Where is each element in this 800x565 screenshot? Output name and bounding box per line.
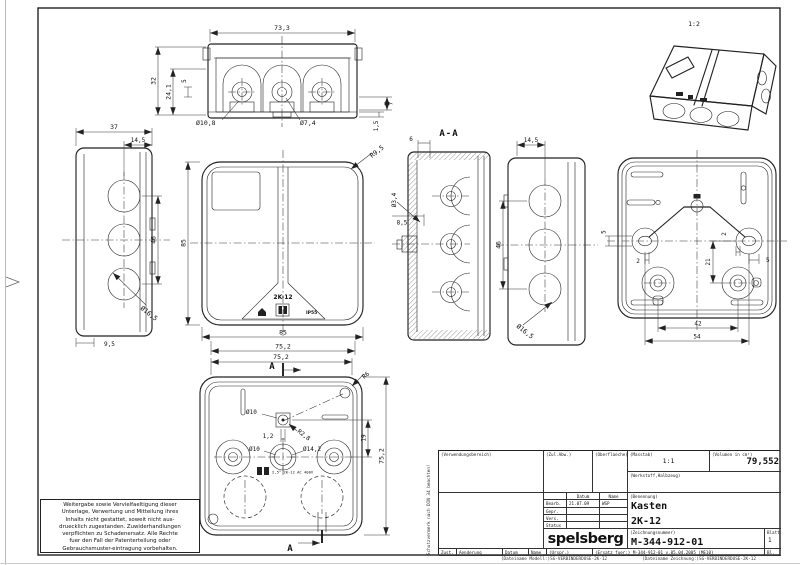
dim-bot-o1: 1,2 <box>263 433 274 440</box>
drawing-number: M-344-912-01 <box>631 537 703 548</box>
dim-left-h: 46 <box>150 236 158 244</box>
house-icon <box>258 308 266 316</box>
dim-bot-d1: Ø10 <box>246 409 257 416</box>
view-front: 2K-12 IP55 85 85 75,2 R9,5 <box>180 144 386 355</box>
dim-top-r2: 1,5 <box>373 120 380 131</box>
tb-sig-corner <box>544 493 567 500</box>
protection-note-vertical: Schutzvermerk nach DIN 34 beachten! <box>427 450 437 555</box>
svg-text:A: A <box>269 362 275 372</box>
dim-top-d1: Ø10,8 <box>196 119 216 127</box>
note-line: druecklich zugestanden. Zuwiderhandlunge… <box>41 524 199 531</box>
dim-back-o4: 5 <box>766 257 770 264</box>
dim-right-d: Ø16,5 <box>515 322 535 340</box>
note-line: Weitergabe sowie Vervielfaeltigung diese… <box>41 502 199 509</box>
file-name-drawing: (Dateiname Zeichnung:)SG-VERBINDERDOSE-2… <box>608 557 790 562</box>
tb-volumen: (Volumen in cm³) 79,552 <box>710 451 781 472</box>
note-line: fuer den Fall der Patenterteilung oder <box>41 538 199 545</box>
dim-right-w: 14,5 <box>524 137 539 144</box>
centering-mark <box>6 277 19 287</box>
dim-front-r: R9,5 <box>368 144 385 160</box>
dim-bot-v1: 19 <box>361 434 368 442</box>
tb-name2: Name <box>529 549 547 556</box>
tb-masstab: (Masstab) 1:1 <box>628 451 710 472</box>
dim-bot-r1: R6 <box>361 370 371 380</box>
tb-bearb-label: Bearb. <box>544 500 567 508</box>
molded-print: 2,5² 2K-12 AC 400V <box>272 470 314 475</box>
note-block: Weitergabe sowie Vervielfaeltigung diese… <box>40 499 200 553</box>
dim-top-r1: 7 <box>388 101 395 105</box>
dim-top-h3: 5 <box>181 79 188 83</box>
dim-front-w2: 75,2 <box>275 343 291 351</box>
dim-left-w2: 14,5 <box>131 137 146 144</box>
dim-front-w: 85 <box>279 329 287 337</box>
dim-top-width: 73,3 <box>274 24 290 32</box>
view-bottom: 2,5² 2K-12 AC 400V A A 75,2 R6 Ø10 R2,8 … <box>200 353 390 554</box>
tb-gepr-label: Gepr. <box>544 508 567 515</box>
dim-back-v: 21 <box>705 258 712 266</box>
part-type: 2K-12 <box>631 516 661 527</box>
dim-front-h: 85 <box>180 239 188 247</box>
tb-benennung: (Benennung) Kasten 2K-12 <box>628 493 781 529</box>
tb-bl: Bl. <box>765 549 781 556</box>
dim-left-off: 9,5 <box>104 341 115 348</box>
dim-back-o2: 2 <box>636 258 640 265</box>
tb-bearb-datum: 21.07.09 <box>567 500 600 508</box>
note-line: verpflichten zu Schadenersatz. Alle Rech… <box>41 531 199 538</box>
titleblock: (Verwendungsbereich) (Zul.Abw.) (Oberfla… <box>438 450 780 555</box>
tb-verwendungsbereich: (Verwendungsbereich) <box>439 451 544 493</box>
tb-urspr: (Urspr.) <box>547 549 593 556</box>
dim-bot-h: 75,2 <box>378 448 386 464</box>
note-line: Inhalts nicht gestattet, soweit nicht au… <box>41 517 199 524</box>
dim-back-o1: 5 <box>601 230 608 234</box>
drawing-sheet: 73,3 32 24,1 5 7 1,5 Ø10,8 Ø7,4 <box>0 0 800 565</box>
view-top: 73,3 32 24,1 5 7 1,5 Ø10,8 Ø7,4 <box>150 24 395 131</box>
iso-scale-label: 1:2 <box>688 20 700 28</box>
label-window <box>212 172 260 210</box>
view-right-side: 14,5 46 Ø16,5 <box>495 137 599 345</box>
section-cut-bottom: A <box>287 530 322 554</box>
tb-ersatz: (Ersatz fuer:) M-344-912-01 v.05.04.2005… <box>593 549 765 556</box>
dim-left-d: Ø16,5 <box>139 304 159 322</box>
dim-top-h2: 24,1 <box>165 84 173 100</box>
dim-top-d2: Ø7,4 <box>300 119 316 127</box>
vde-mark-icon <box>276 304 289 316</box>
tb-status-label: Status <box>544 522 567 529</box>
tb-vers-label: Vers. <box>544 515 567 522</box>
dim-left-w: 37 <box>110 123 118 131</box>
company-logo: spelsberg <box>544 529 628 549</box>
tb-zul-abw: (Zul.Abw.) <box>544 451 593 493</box>
view-back: 5 2 2 21 5 42 54 <box>601 150 788 345</box>
view-section-aa: A-A 6 Ø3,4 8,5 <box>391 129 490 340</box>
tb-bearb-name: WSP <box>600 500 628 508</box>
section-cut-top: A <box>269 362 301 376</box>
note-line: Gebrauchsmuster-eintragung vorbehalten. <box>41 546 199 553</box>
tb-werkstoff: (Werkstoff,Halbzeug) <box>628 472 781 493</box>
tb-zust: Zust. <box>439 549 457 556</box>
tb-datum-header: Datum <box>567 493 600 500</box>
dim-bot-d3: Ø14,2 <box>303 446 321 453</box>
dim-sec-t: 6 <box>409 136 413 143</box>
part-name: Kasten <box>631 501 667 512</box>
ip-rating-label: IP55 <box>306 310 317 316</box>
dim-bot-r2: R2,8 <box>296 428 312 443</box>
view-isometric: 1:2 <box>650 20 776 130</box>
tb-empty-cell <box>439 493 544 549</box>
tb-blatt: Blatt 1 <box>765 529 781 549</box>
tb-aenderung: Aenderung <box>457 549 503 556</box>
dim-bot-d2: Ø10 <box>249 446 260 453</box>
dim-right-h: 46 <box>495 241 503 249</box>
note-line: Unterlage, Verwertung und Mitteilung ihr… <box>41 509 199 516</box>
tb-datum2: Datum <box>503 549 529 556</box>
dim-sec-d: Ø3,4 <box>391 192 398 207</box>
view-left-side: 37 14,5 46 Ø16,5 9,5 <box>62 123 170 348</box>
dim-bot-w: 75,2 <box>273 353 289 361</box>
dim-back-b1: 42 <box>694 321 702 328</box>
tb-name-header: Name <box>600 493 628 500</box>
dim-sec-o: 8,5 <box>397 220 408 227</box>
section-title: A-A <box>439 129 458 139</box>
tb-zeichnungsnummer: (Zeichnungsnummer) M-344-912-01 <box>628 529 765 549</box>
svg-text:A: A <box>287 544 293 554</box>
dim-top-h1: 32 <box>150 77 158 85</box>
dim-back-b2: 54 <box>693 334 701 341</box>
tb-oberflaeche: (Oberflaeche) <box>593 451 628 493</box>
dim-back-o3: 2 <box>721 232 728 236</box>
